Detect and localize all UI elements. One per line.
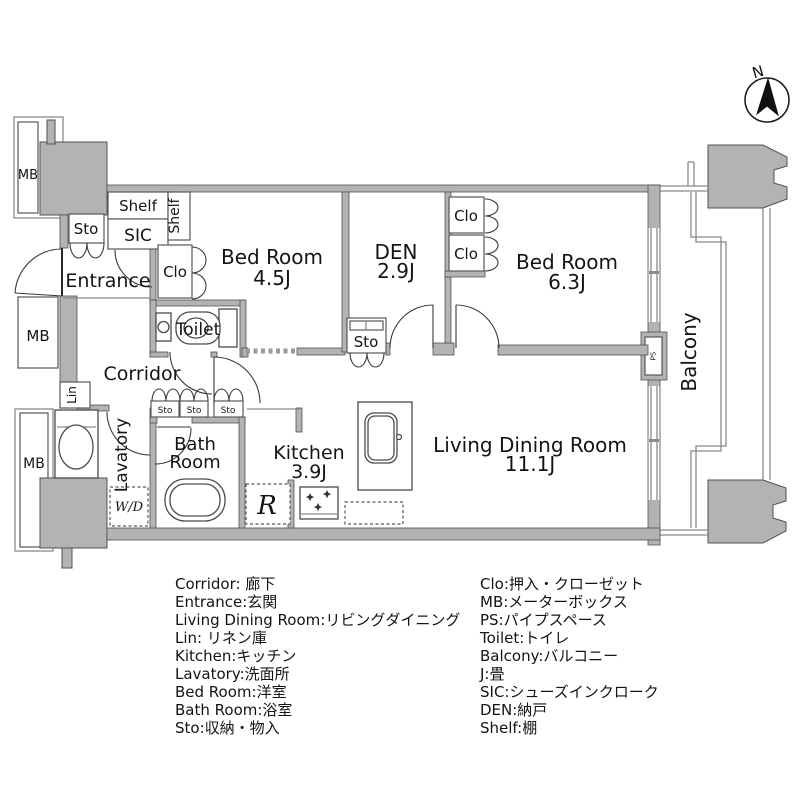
bathtub-inner bbox=[170, 484, 220, 516]
refrigerator-label: R bbox=[256, 491, 277, 521]
entrance-east-wall bbox=[150, 245, 156, 303]
bedroom2-label-line2: 6.3J bbox=[548, 270, 586, 294]
bath-east-wall bbox=[239, 417, 245, 528]
window-glass bbox=[649, 228, 660, 322]
legend-left-item: Sto:収納・物入 bbox=[175, 719, 280, 737]
bedroom1-south-wall bbox=[297, 348, 345, 355]
washer-dryer-label: W/D bbox=[115, 500, 144, 515]
toilet-tank bbox=[219, 309, 237, 347]
legend-left-item: Lin: リネン庫 bbox=[175, 629, 267, 647]
closet-bottom-wall bbox=[445, 271, 485, 277]
bedroom1-closet-bifold-door bbox=[192, 247, 206, 299]
kitchen-label-line2: 3.9J bbox=[291, 461, 327, 483]
entrance-sto-bifold-door bbox=[70, 243, 104, 258]
toilet-label: Toilet bbox=[175, 320, 221, 340]
gray-block-top-notch bbox=[47, 120, 55, 144]
compass-needle-icon bbox=[757, 79, 778, 115]
legend: Corridor: 廊下 Entrance:玄関 Living Dining R… bbox=[175, 575, 659, 737]
basin-bowl bbox=[59, 425, 93, 469]
floor-plan-svg: MB MB MB Sto Shelf SIC Shelf Entrance Cl… bbox=[0, 0, 800, 800]
compass-north-label: N bbox=[750, 62, 766, 82]
toilet-south-wall-a bbox=[150, 352, 168, 357]
living-label-line2: 11.1J bbox=[505, 452, 555, 476]
shelf-vertical-label: Shelf bbox=[167, 197, 183, 233]
balcony-top-connector bbox=[660, 186, 708, 191]
corridor-sto1-label: Sto bbox=[158, 406, 173, 416]
bedroom1-entry-door bbox=[214, 357, 260, 403]
legend-right-item: SIC:シューズインクローク bbox=[480, 683, 659, 701]
balcony-label: Balcony bbox=[677, 312, 701, 391]
lavatory-bath-wall bbox=[150, 408, 156, 528]
mb-label-mid: MB bbox=[26, 327, 49, 345]
sic-label: SIC bbox=[124, 226, 152, 246]
legend-right-item: Toilet:トイレ bbox=[479, 629, 569, 647]
gray-block-bottom-right bbox=[708, 480, 786, 543]
mb-label-bottom: MB bbox=[23, 456, 45, 472]
entrance-west-upper-wall bbox=[60, 215, 68, 248]
gray-block-bottom-left bbox=[40, 478, 107, 548]
window-bedroom2 bbox=[649, 228, 660, 322]
toilet-west-wall bbox=[150, 300, 156, 357]
den-sto-bifold-door bbox=[350, 353, 384, 367]
entrance-door bbox=[15, 249, 62, 296]
faucet bbox=[397, 435, 402, 440]
kitchen-sink-inner bbox=[368, 416, 394, 460]
kitchen-north-stub bbox=[296, 408, 302, 432]
shelf-label: Shelf bbox=[119, 197, 157, 215]
gray-block-top-left bbox=[40, 142, 107, 215]
gray-block-bottom-tail bbox=[62, 548, 72, 568]
door-swing bbox=[214, 357, 260, 403]
door-swing bbox=[390, 305, 433, 348]
legend-left-item: Entrance:玄関 bbox=[175, 593, 277, 611]
bedroom2-closet2-label: Clo bbox=[454, 245, 478, 263]
den-sto-label: Sto bbox=[354, 333, 379, 351]
balcony-top-divider bbox=[688, 162, 694, 186]
linen-label: Lin bbox=[65, 386, 79, 404]
bedroom1-label-line2: 4.5J bbox=[253, 266, 291, 290]
bedroom2-closet1-bifold-door bbox=[485, 199, 498, 233]
balcony-railing bbox=[763, 208, 770, 480]
legend-right-item: MB:メーターボックス bbox=[480, 593, 628, 611]
balcony-bottom-connector bbox=[660, 530, 708, 535]
legend-right-item: DEN:納戸 bbox=[480, 701, 547, 719]
corridor-sto-bifold-doors bbox=[152, 389, 208, 401]
bedroom2-south-wall bbox=[498, 345, 648, 355]
north-wall bbox=[107, 185, 660, 192]
corridor-sto3-label: Sto bbox=[221, 406, 236, 416]
mb-label-top: MB bbox=[18, 168, 38, 183]
window-glass bbox=[649, 386, 660, 500]
south-wall bbox=[107, 528, 660, 540]
bedroom2-closet1-label: Clo bbox=[454, 207, 478, 225]
lavatory-label: Lavatory bbox=[112, 418, 132, 492]
toilet-north-wall bbox=[150, 300, 245, 306]
legend-left-item: Kitchen:キッチン bbox=[175, 647, 296, 665]
den-south-pier-b bbox=[433, 343, 454, 355]
window-living bbox=[649, 386, 660, 500]
bedroom2-closet2-bifold-door bbox=[485, 237, 498, 271]
toilet-south-wall-b bbox=[211, 352, 217, 357]
kitchen-counter bbox=[358, 402, 412, 490]
toilet-hand-basin-bowl bbox=[158, 322, 169, 333]
window-center-tick bbox=[649, 271, 659, 274]
legend-right-item: J:畳 bbox=[479, 665, 504, 683]
legend-right-item: PS:パイプスペース bbox=[480, 611, 607, 629]
window-center-tick bbox=[649, 439, 659, 442]
counter-dashed bbox=[345, 502, 403, 524]
corridor-west-wall bbox=[60, 296, 77, 382]
den-label-line2: 2.9J bbox=[377, 259, 415, 283]
bedroom2-door bbox=[456, 305, 499, 348]
legend-left-item: Corridor: 廊下 bbox=[175, 575, 275, 593]
legend-left-item: Bed Room:洋室 bbox=[175, 683, 287, 701]
bath-north-wall-b bbox=[192, 417, 245, 423]
entrance-label: Entrance bbox=[65, 270, 150, 292]
lavatory-basin bbox=[55, 410, 98, 478]
floor-plan-page: MB MB MB Sto Shelf SIC Shelf Entrance Cl… bbox=[0, 0, 800, 800]
door-swing bbox=[456, 305, 499, 348]
bathtub bbox=[165, 479, 225, 521]
ps-label: PS bbox=[650, 351, 658, 360]
entrance-sto-label: Sto bbox=[74, 220, 99, 238]
corridor-label: Corridor bbox=[104, 363, 181, 385]
bath-north-wall-a bbox=[150, 417, 157, 423]
corridor-sto2-label: Sto bbox=[187, 406, 202, 416]
den-door bbox=[390, 305, 433, 348]
bedroom1-closet-label: Clo bbox=[163, 263, 187, 281]
gray-block-top-right bbox=[708, 145, 787, 208]
corridor-sto3-bifold-door bbox=[214, 389, 243, 401]
compass: N bbox=[745, 62, 789, 122]
legend-right-item: Shelf:棚 bbox=[480, 719, 537, 737]
legend-right-item: Clo:押入・クローゼット bbox=[480, 575, 644, 593]
legend-left-item: Bath Room:浴室 bbox=[175, 701, 292, 719]
stove bbox=[300, 487, 338, 519]
legend-right-item: Balcony:バルコニー bbox=[480, 647, 618, 665]
bath-label-line2: Room bbox=[169, 452, 220, 473]
den-south-pier-a bbox=[386, 343, 390, 355]
legend-left-item: Lavatory:洗面所 bbox=[175, 665, 290, 683]
legend-left-item: Living Dining Room:リビングダイニング bbox=[175, 611, 460, 629]
